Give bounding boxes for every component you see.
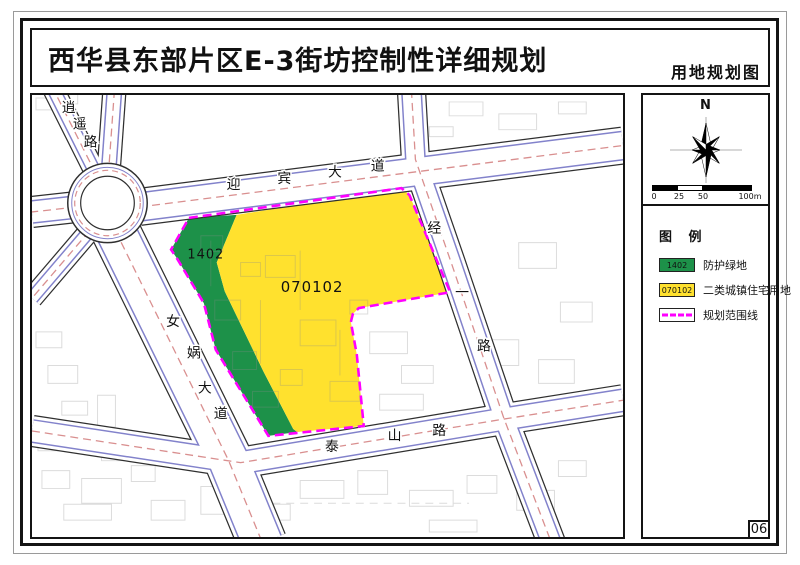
legend-title: 图 例 bbox=[659, 226, 768, 245]
legend-swatch-green: 1402 bbox=[659, 258, 695, 272]
scale-tick-25: 25 bbox=[674, 192, 684, 201]
north-label: N bbox=[643, 98, 768, 113]
page-number: 06 bbox=[748, 520, 770, 539]
legend-item-boundary: 规划范围线 bbox=[659, 307, 768, 323]
scale-bar bbox=[652, 185, 752, 191]
land-use-map: 1402070102 逍遥路迎宾大道经一路女娲大道泰山路 bbox=[30, 93, 625, 539]
scale-tick-0: 0 bbox=[651, 192, 656, 201]
scale-seg-25-50 bbox=[678, 186, 703, 190]
scale-seg-0-25 bbox=[653, 186, 678, 190]
compass-rose-icon bbox=[667, 114, 745, 186]
legend-swatch-yellow: 070102 bbox=[659, 283, 695, 297]
map-key-panel: N 0 25 50 100m bbox=[641, 93, 770, 539]
road-label-char: 经 bbox=[427, 221, 441, 237]
parcel-code-070102: 070102 bbox=[281, 278, 344, 296]
map-canvas: 1402070102 逍遥路迎宾大道经一路女娲大道泰山路 bbox=[32, 95, 623, 537]
legend: 图 例 1402 防护绿地 070102 二类城镇住宅用地 规划范围线 bbox=[643, 206, 768, 323]
legend-label: 二类城镇住宅用地 bbox=[703, 282, 791, 298]
road-label-char: 泰 bbox=[325, 439, 339, 455]
north-and-scale-section: N 0 25 50 100m bbox=[643, 95, 768, 206]
scale-tick-labels: 0 25 50 100m bbox=[643, 192, 772, 202]
road-label-char: 山 bbox=[388, 428, 402, 444]
road-label-char: 大 bbox=[198, 380, 212, 396]
road-label-char: 路 bbox=[84, 135, 98, 151]
road-label-char: 逍 bbox=[62, 100, 76, 116]
boundary-line-sample bbox=[662, 314, 692, 317]
road-label-char: 女 bbox=[166, 313, 180, 330]
legend-label: 防护绿地 bbox=[703, 257, 747, 273]
map-type-label: 用地规划图 bbox=[671, 59, 761, 83]
scale-seg-50-100 bbox=[702, 186, 751, 190]
page-title: 西华县东部片区E-3街坊控制性详细规划 bbox=[48, 39, 547, 78]
road-label-char: 娲 bbox=[187, 346, 201, 362]
title-bar: 西华县东部片区E-3街坊控制性详细规划 用地规划图 bbox=[30, 28, 770, 87]
parcel-code-1402: 1402 bbox=[187, 248, 224, 263]
plan-sheet: { "page": { "title": "西华县东部片区E-3街坊控制性详细规… bbox=[0, 0, 800, 565]
scale-tick-50: 50 bbox=[698, 192, 708, 201]
road-label-char: 道 bbox=[214, 406, 228, 422]
road-label-char: 道 bbox=[371, 158, 385, 174]
road-label-char: 遥 bbox=[73, 117, 87, 133]
road-label-char: 路 bbox=[432, 423, 446, 439]
legend-label: 规划范围线 bbox=[703, 307, 758, 323]
legend-item-residential: 070102 二类城镇住宅用地 bbox=[659, 282, 768, 298]
legend-swatch-boundary bbox=[659, 308, 695, 322]
legend-item-protective-green: 1402 防护绿地 bbox=[659, 257, 768, 273]
road-label-char: 一 bbox=[455, 285, 469, 301]
road-label-char: 宾 bbox=[277, 171, 291, 187]
road-label-char: 大 bbox=[328, 164, 342, 180]
road-label-char: 迎 bbox=[227, 177, 241, 193]
road-label-char: 路 bbox=[477, 339, 491, 355]
scale-tick-100: 100m bbox=[738, 192, 761, 201]
roundabout bbox=[68, 163, 147, 242]
